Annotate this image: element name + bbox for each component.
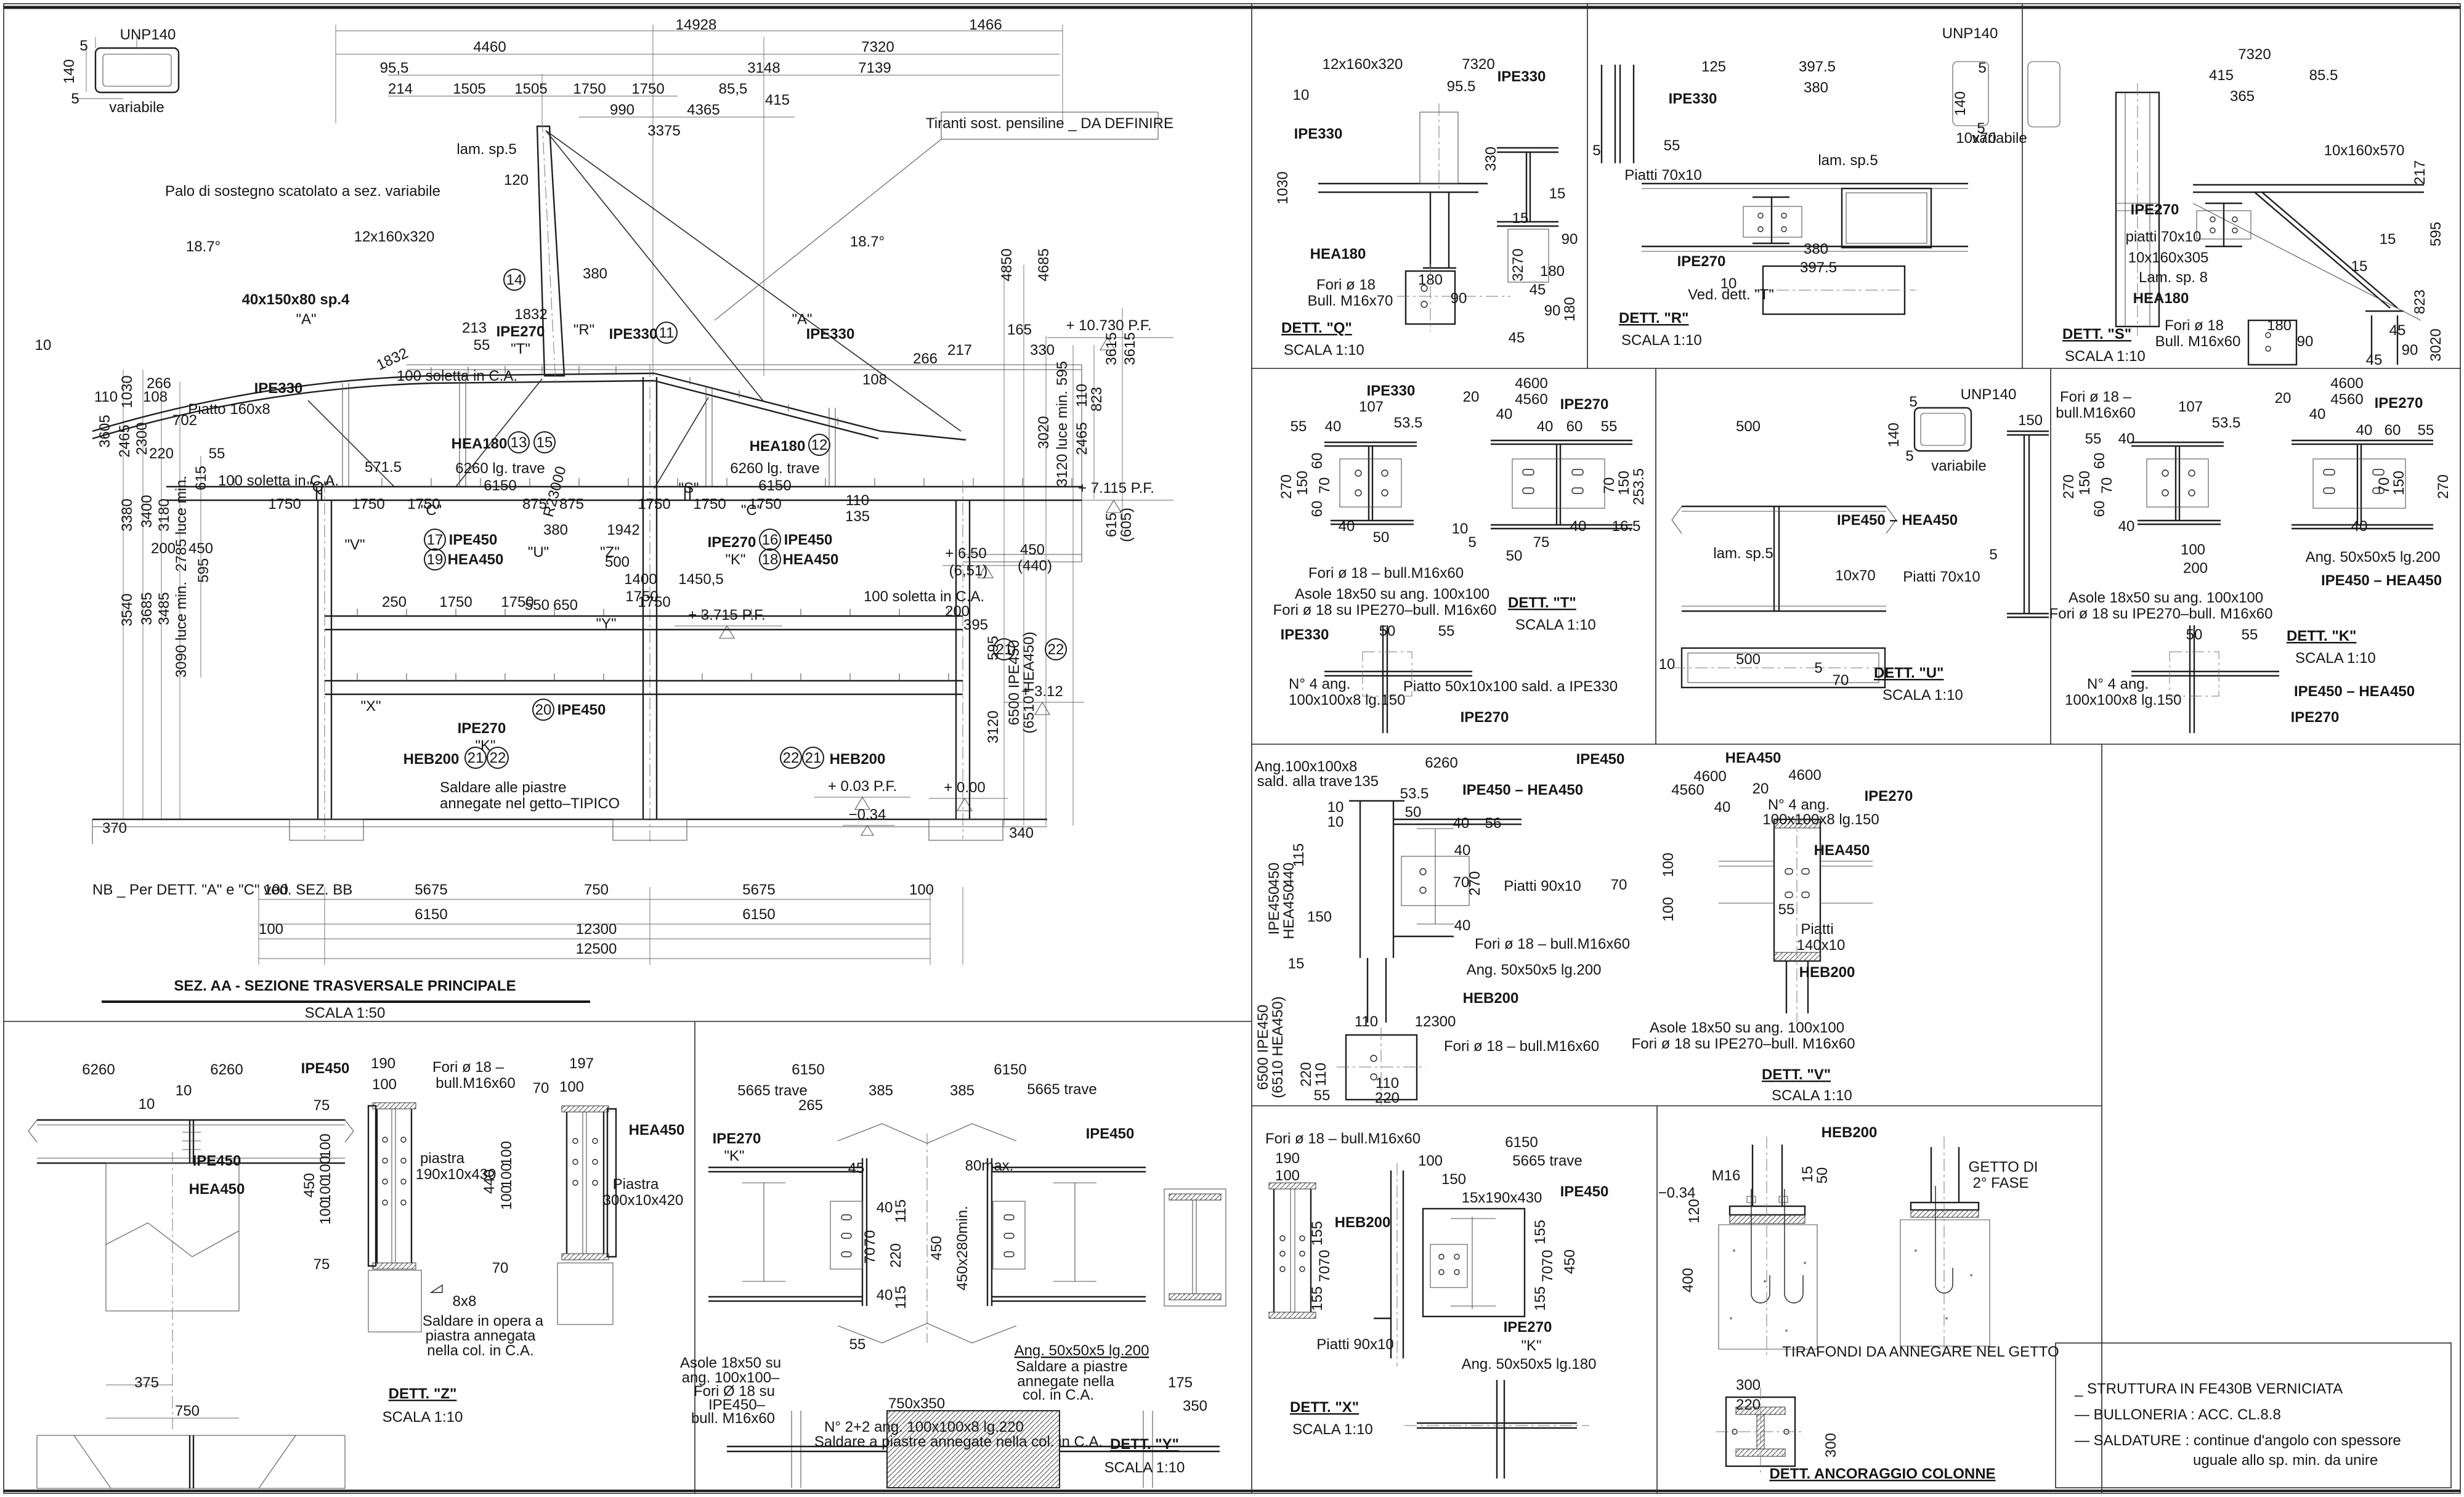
dim-label: 615 bbox=[193, 466, 209, 490]
dim-label: IPE270 bbox=[496, 323, 545, 340]
dim-label: 4460 bbox=[473, 39, 506, 55]
dim-label: 266 bbox=[913, 351, 938, 367]
dim-label: 875 bbox=[559, 496, 584, 513]
dim-label: 190 bbox=[371, 1055, 395, 1072]
dim-label: 15 bbox=[1799, 1166, 1816, 1183]
dim-label: Saldare a piastre bbox=[1016, 1358, 1127, 1375]
dim-label: Ang. 50x50x5 lg.180 bbox=[1462, 1356, 1597, 1373]
dim-label: 500 bbox=[1736, 418, 1761, 435]
dim-label: Fori ø 18 – bull.M16x60 bbox=[1308, 565, 1464, 582]
dim-label: SCALA 1:10 bbox=[2295, 650, 2376, 667]
nb-note: NB _ Per DETT. "A" e "C" ved. SEZ. BB bbox=[92, 882, 352, 898]
dim-label: 3180 bbox=[156, 498, 172, 531]
dim-label: 50 bbox=[1379, 623, 1396, 639]
dim-label: 107 bbox=[2178, 399, 2203, 415]
dim-label: 5 bbox=[79, 38, 87, 54]
sheet-scale: SCALA 1:50 bbox=[305, 1005, 386, 1021]
dim-label: DETT. "U" bbox=[1874, 665, 1943, 681]
dim-label: 750 bbox=[175, 1403, 200, 1419]
dim-label: 380 bbox=[1804, 241, 1828, 258]
dim-label: "A" bbox=[792, 311, 812, 328]
dim-label: 150 bbox=[1294, 471, 1311, 495]
panel-ancoraggio bbox=[1716, 1137, 1990, 1476]
dim-label: 253.5 bbox=[1631, 468, 1647, 505]
dim-label: 90 bbox=[2297, 333, 2314, 350]
dim-label: 2° FASE bbox=[1973, 1175, 2029, 1191]
callout-number: 12 bbox=[809, 434, 830, 455]
dim-label: 70 bbox=[1611, 877, 1627, 893]
dim-label: Piatto 160x8 bbox=[188, 401, 270, 418]
dim-label: 380 bbox=[543, 522, 568, 538]
dim-label: 100 bbox=[1418, 1153, 1443, 1169]
dim-label: 5675 bbox=[742, 882, 775, 898]
dim-label: 3020 bbox=[2428, 328, 2444, 361]
annotation-layer: 1492814664460732095,53148713921415051505… bbox=[35, 17, 2452, 1482]
dim-label: M16 bbox=[1712, 1167, 1741, 1184]
dim-label: 1750 bbox=[638, 594, 670, 611]
dim-label: 165 bbox=[1007, 322, 1032, 338]
dim-label: 5 bbox=[71, 91, 79, 107]
dim-label: 22 bbox=[490, 750, 506, 766]
dim-label: HEB200 bbox=[1822, 1124, 1878, 1141]
dim-label: 15 bbox=[1288, 955, 1305, 972]
dim-label: 15x190x430 bbox=[1462, 1190, 1542, 1206]
dim-label: 595 bbox=[2428, 222, 2444, 246]
dim-label: 75 bbox=[314, 1256, 330, 1273]
dim-label: 990 bbox=[610, 102, 634, 118]
dim-label: "V" bbox=[344, 537, 365, 553]
dim-label: "K" bbox=[1521, 1337, 1541, 1354]
dim-label: 220 bbox=[1736, 1397, 1761, 1413]
main-section-drawing bbox=[74, 25, 1173, 965]
dim-label: "Y" bbox=[596, 615, 616, 632]
dim-label: 1505 bbox=[514, 81, 547, 97]
dim-label: 20 bbox=[1463, 389, 1480, 405]
dim-label: 5 bbox=[1978, 60, 1986, 76]
dim-label: SCALA 1:10 bbox=[2065, 348, 2146, 365]
dim-label: 6500 IPE450 bbox=[1255, 1005, 1271, 1090]
dim-label: IPE330 bbox=[1294, 126, 1343, 142]
dim-label: 107 bbox=[1359, 399, 1384, 415]
dim-label: Ang.100x100x8 bbox=[1255, 758, 1358, 775]
dim-label: IPE270 bbox=[708, 534, 756, 551]
dim-label: 12300 bbox=[576, 921, 617, 938]
dim-label: IPE270 bbox=[2375, 395, 2423, 412]
dim-label: 140x10 bbox=[1797, 937, 1846, 954]
dim-label: 150 bbox=[1307, 909, 1332, 925]
dim-label: Saldare alle piastre bbox=[440, 779, 566, 796]
dim-label: 330 bbox=[1030, 342, 1055, 359]
dim-label: Piatti 90x10 bbox=[1316, 1336, 1393, 1353]
dim-label: 53.5 bbox=[2212, 415, 2241, 431]
dim-label: 45 bbox=[2366, 352, 2383, 368]
dim-label: Fori ø 18 bbox=[2165, 317, 2224, 334]
dim-label: IPE270 bbox=[713, 1130, 761, 1147]
dim-label: 400 bbox=[1680, 1268, 1696, 1292]
dim-label: 450 bbox=[1020, 542, 1045, 558]
dim-label: 4560 bbox=[2330, 391, 2363, 408]
dim-label: HEB200 bbox=[1799, 964, 1855, 981]
note-line: — BULLONERIA : ACC. CL.8.8 bbox=[2075, 1406, 2281, 1423]
dim-label: 10x160x570 bbox=[2324, 142, 2405, 159]
dim-label: HEA450 bbox=[1281, 884, 1297, 939]
dim-label: IPE450 bbox=[557, 702, 606, 718]
dim-label: Asole 18x50 su ang. 100x100 bbox=[1295, 586, 1489, 602]
callout-number: 22 bbox=[1045, 639, 1066, 660]
dim-label: HEA450 bbox=[1814, 842, 1870, 859]
dim-label: IPE450 bbox=[1266, 886, 1283, 935]
dim-label: 1400 bbox=[624, 571, 657, 588]
dim-label: 6150 bbox=[758, 477, 791, 494]
dim-label: 823 bbox=[1088, 387, 1105, 412]
dim-label: 110 bbox=[1074, 384, 1090, 407]
dim-label: 100x100x8 lg.150 bbox=[1289, 692, 1406, 708]
dim-label: HEA180 bbox=[1310, 246, 1366, 262]
dim-label: HEB200 bbox=[830, 751, 886, 768]
dim-label: Tiranti sost. pensiline _ DA DEFINIRE bbox=[926, 115, 1173, 132]
dim-label: 5 bbox=[1905, 448, 1913, 465]
dim-label: piatti 70x10 bbox=[2126, 229, 2202, 245]
dim-label: Fori ø 18 – bbox=[432, 1059, 505, 1076]
dim-label: IPE270 bbox=[1865, 788, 1913, 805]
dim-label: 3375 bbox=[647, 123, 680, 139]
dim-label: 12300 bbox=[1415, 1013, 1456, 1030]
dim-label: Ang. 50x50x5 lg.200 bbox=[2306, 549, 2441, 566]
dim-label: 140 bbox=[61, 59, 78, 84]
dim-label: 220 bbox=[1298, 1062, 1315, 1087]
dim-label: 220 bbox=[1375, 1090, 1400, 1106]
dim-label: 40 bbox=[2309, 406, 2326, 423]
dim-label: Bull. M16x60 bbox=[2155, 333, 2241, 350]
callout-number: 11 bbox=[656, 322, 677, 343]
dim-label: 4365 bbox=[687, 102, 719, 118]
dim-label: 70 bbox=[2376, 477, 2393, 494]
dim-label: 70 bbox=[533, 1080, 549, 1097]
sheet-frame bbox=[4, 4, 2460, 1493]
dim-label: 450 bbox=[301, 1173, 318, 1198]
dim-label: 40 bbox=[1496, 406, 1513, 423]
dim-label: 15 bbox=[1549, 185, 1566, 202]
dim-label: 55 bbox=[1291, 418, 1307, 435]
dim-label: 11 bbox=[659, 325, 675, 341]
dim-label: 12 bbox=[811, 437, 828, 453]
callout-number: 22 bbox=[780, 747, 801, 768]
dim-label: DETT. ANCORAGGIO COLONNE bbox=[1769, 1466, 1995, 1482]
dim-label: 40 bbox=[1339, 518, 1355, 535]
dim-label: 12x160x320 bbox=[354, 229, 435, 245]
dim-label: IPE270 bbox=[2291, 709, 2340, 726]
dim-label: 5665 trave bbox=[1512, 1153, 1582, 1169]
dim-label: 10 bbox=[176, 1082, 192, 1099]
dim-label: SCALA 1:10 bbox=[1621, 332, 1702, 349]
dim-label: 140 bbox=[1952, 91, 1969, 116]
dim-label: 100 bbox=[498, 1185, 515, 1210]
dim-label: 53.5 bbox=[1394, 415, 1423, 431]
dim-label: "C" bbox=[421, 502, 442, 519]
dim-label: 3380 bbox=[119, 498, 136, 531]
dim-label: variabile bbox=[109, 99, 164, 116]
dim-label: "K" bbox=[724, 1148, 744, 1164]
dim-label: 4600 bbox=[1788, 767, 1821, 784]
dim-label: 40 bbox=[1454, 917, 1471, 934]
dim-label: 5 bbox=[1909, 394, 1917, 410]
dim-label: 40 bbox=[1537, 418, 1554, 435]
dim-label: 270 bbox=[2435, 474, 2452, 499]
panel-dett-r bbox=[1602, 62, 1988, 314]
dim-label: 1750 bbox=[631, 81, 664, 97]
dim-label: Saldare in opera a bbox=[423, 1313, 544, 1329]
dim-label: 50 bbox=[1814, 1167, 1831, 1184]
dim-label: 100 bbox=[498, 1141, 515, 1166]
dim-label: + 3.12 bbox=[1021, 683, 1063, 700]
dim-label: 150 bbox=[1616, 471, 1632, 495]
dim-label: 70 bbox=[1539, 1266, 1556, 1283]
note-line: uguale allo sp. min. da unire bbox=[2193, 1452, 2378, 1469]
dim-label: 10 bbox=[1452, 521, 1469, 537]
dim-label: 300 bbox=[1823, 1433, 1839, 1458]
dim-label: HEA180 bbox=[750, 438, 806, 455]
dim-label: IPE450 – HEA450 bbox=[1837, 512, 1958, 529]
dim-label: 110 bbox=[846, 492, 869, 509]
dim-label: 100 bbox=[317, 1200, 334, 1225]
dim-label: 750 bbox=[584, 882, 609, 898]
dim-label: 10 bbox=[1327, 814, 1344, 830]
dim-label: 650 bbox=[553, 597, 578, 614]
dim-label: 1750 bbox=[439, 594, 472, 611]
dim-label: 40x150x80 sp.4 bbox=[242, 291, 350, 308]
dim-label: Piatti bbox=[1801, 921, 1833, 938]
dim-label: IPE330 bbox=[1669, 91, 1717, 107]
dim-label: 155 bbox=[1532, 1286, 1549, 1311]
dim-label: 5665 trave bbox=[737, 1082, 807, 1099]
dim-label: 220 bbox=[149, 445, 174, 462]
dim-label: + 7.115 P.F. bbox=[1078, 480, 1154, 497]
dim-label: 450 bbox=[188, 540, 213, 557]
dim-label: 100 bbox=[1275, 1167, 1300, 1184]
dim-label: 120 bbox=[504, 172, 529, 189]
dim-label: SCALA 1:10 bbox=[1104, 1459, 1185, 1476]
dim-label: 70 bbox=[1316, 1250, 1333, 1267]
dim-label: 70 bbox=[1316, 1266, 1333, 1283]
dim-label: 16 bbox=[762, 532, 779, 548]
dim-label: Piastra bbox=[613, 1176, 659, 1193]
dim-label: 875 bbox=[522, 496, 547, 513]
dim-label: SCALA 1:10 bbox=[1515, 617, 1596, 633]
dim-label: 70 bbox=[862, 1230, 878, 1247]
dim-label: 180 bbox=[1562, 297, 1578, 322]
dim-label: 40 bbox=[877, 1199, 893, 1216]
dim-label: 5 bbox=[1592, 142, 1600, 159]
dim-label: HEB200 bbox=[1463, 990, 1519, 1007]
dim-label: 50 bbox=[1373, 529, 1390, 546]
dim-label: 450 bbox=[928, 1236, 945, 1260]
dim-label: 60 bbox=[1566, 418, 1583, 435]
dim-label: 6150 bbox=[484, 477, 516, 494]
dim-label: 85,5 bbox=[719, 81, 748, 97]
dim-label: 40 bbox=[2118, 431, 2135, 447]
dim-label: N° 4 ang. bbox=[1768, 797, 1830, 813]
dim-label: + 0.03 P.F. bbox=[828, 778, 897, 795]
dim-label: 270 bbox=[2061, 474, 2077, 499]
dim-label: 7320 bbox=[1462, 56, 1494, 73]
dim-label: 595 bbox=[1054, 361, 1071, 386]
dim-label: HEA450 bbox=[783, 551, 839, 568]
dim-label: Fori ø 18 su IPE270–bull. M16x60 bbox=[2049, 606, 2273, 622]
dim-label: 95,5 bbox=[380, 60, 409, 76]
dim-label: "Z" bbox=[600, 544, 620, 561]
dim-label: bull. M16x60 bbox=[691, 1410, 775, 1427]
dim-label: 180 bbox=[1418, 272, 1443, 288]
dim-label: 70 bbox=[492, 1260, 509, 1276]
dim-label: 6260 lg. trave bbox=[730, 460, 819, 477]
dim-label: (6,51) bbox=[949, 562, 988, 579]
dim-label: 6150 bbox=[994, 1061, 1026, 1078]
dim-label: (6510 HEA450) bbox=[1270, 996, 1286, 1098]
dim-label: 100 bbox=[559, 1079, 584, 1095]
dim-label: 300x10x420 bbox=[603, 1192, 684, 1209]
dim-label: 55 bbox=[1601, 418, 1618, 435]
dim-label: IPE450 bbox=[301, 1060, 350, 1077]
dim-label: IPE450 – HEA450 bbox=[2321, 572, 2442, 589]
dim-label: 100 bbox=[1660, 897, 1677, 922]
dim-label: 190 bbox=[1275, 1150, 1300, 1167]
dim-label: 10 bbox=[139, 1096, 155, 1113]
note-line: — SALDATURE : continue d'angolo con spes… bbox=[2075, 1432, 2401, 1449]
dim-label: 110 bbox=[94, 389, 118, 405]
dim-label: IPE450 – HEA450 bbox=[1462, 782, 1583, 798]
dim-label: 270 bbox=[1467, 871, 1483, 896]
dim-label: Ang. 50x50x5 lg.200 bbox=[1015, 1342, 1149, 1359]
dim-label: DETT. "Q" bbox=[1281, 320, 1352, 336]
dim-label: −0.34 bbox=[849, 806, 886, 823]
dim-label: Ang. 50x50x5 lg.200 bbox=[1467, 962, 1602, 978]
dim-label: 4560 bbox=[1515, 391, 1547, 408]
dim-label: SCALA 1:10 bbox=[1292, 1421, 1373, 1438]
dim-label: 40 bbox=[1570, 518, 1587, 535]
dim-label: "R" bbox=[573, 322, 594, 338]
dim-label: HEA450 bbox=[1725, 750, 1781, 766]
dim-label: 108 bbox=[143, 389, 168, 405]
dim-label: 3090 luce min. bbox=[173, 582, 190, 678]
dim-label: 415 bbox=[2209, 67, 2234, 84]
dim-label: 100 bbox=[1660, 853, 1677, 877]
dim-label: 21 bbox=[468, 750, 484, 766]
dim-label: 1942 bbox=[607, 522, 639, 538]
dim-label: 6150 bbox=[415, 906, 447, 923]
dim-label: 5 bbox=[1989, 546, 1997, 563]
dim-label: 95.5 bbox=[1447, 78, 1476, 95]
dim-label: 100 soletta in C.A. bbox=[218, 473, 339, 489]
dim-label: GETTO DI bbox=[1969, 1159, 2038, 1175]
dim-label: HEA180 bbox=[452, 436, 508, 452]
dim-label: 4600 bbox=[1515, 375, 1547, 392]
dim-label: 40 bbox=[1453, 815, 1470, 832]
dim-label: 217 bbox=[2412, 160, 2428, 185]
dim-label: 385 bbox=[869, 1082, 893, 1099]
dim-label: 140 bbox=[1886, 423, 1902, 447]
dim-label: 55 bbox=[1314, 1087, 1331, 1104]
dim-label: Fori ø 18 su IPE270–bull. M16x60 bbox=[1273, 602, 1497, 619]
dim-label: SCALA 1:10 bbox=[1882, 687, 1963, 704]
dim-label: Lam. sp. 8 bbox=[2139, 269, 2208, 286]
dim-label: SCALA 1:10 bbox=[383, 1409, 463, 1426]
dim-label: 40 bbox=[877, 1287, 893, 1304]
dim-label: 220 bbox=[888, 1243, 904, 1268]
dim-label: 7320 bbox=[861, 39, 894, 55]
dim-label: 15 bbox=[537, 434, 553, 451]
dim-label: IPE270 bbox=[2131, 201, 2179, 218]
dim-label: IPE450 bbox=[1576, 751, 1625, 768]
drawing-canvas: SEZ. AA - SEZIONE TRASVERSALE PRINCIPALE… bbox=[0, 0, 2464, 1497]
dim-label: 415 bbox=[765, 92, 790, 108]
dim-label: 1466 bbox=[969, 17, 1002, 33]
dim-label: 21 bbox=[805, 750, 822, 766]
dim-label: 571.5 bbox=[365, 459, 402, 476]
dim-label: 6260 bbox=[1425, 755, 1457, 771]
dim-label: 40 bbox=[1454, 842, 1471, 859]
dim-label: lam. sp.5 bbox=[1818, 152, 1878, 169]
dim-label: 175 bbox=[1168, 1374, 1193, 1391]
dim-label: piastra bbox=[420, 1150, 465, 1167]
dim-label: "T" bbox=[511, 341, 530, 357]
dim-label: 100 bbox=[317, 1178, 334, 1203]
dim-label: 1750 bbox=[693, 496, 726, 513]
dim-label: UNP140 bbox=[1961, 386, 2017, 403]
dim-label: 55 bbox=[849, 1336, 866, 1353]
dim-label: IPE450 bbox=[1086, 1126, 1135, 1142]
dim-label: DETT. "Y" bbox=[1110, 1436, 1179, 1453]
dim-label: Bull. M16x70 bbox=[1308, 293, 1393, 309]
dim-label: 180 bbox=[2267, 317, 2292, 334]
dim-label: N° 2+2 ang. 100x100x8 lg.220 bbox=[824, 1419, 1024, 1435]
dim-label: 16.5 bbox=[1612, 518, 1641, 535]
dim-label: 55 bbox=[2242, 627, 2258, 643]
dim-label: 135 bbox=[1354, 773, 1379, 790]
dim-label: 70 bbox=[1539, 1250, 1556, 1267]
dim-label: 4685 bbox=[1035, 248, 1052, 281]
dim-label: SCALA 1:10 bbox=[1284, 342, 1364, 359]
dim-label: 100 bbox=[2181, 542, 2205, 558]
dim-label: 120 bbox=[1686, 1199, 1703, 1223]
dim-label: 40 bbox=[2118, 518, 2135, 535]
dim-label: HEB200 bbox=[1335, 1214, 1391, 1231]
dim-label: 10x70 bbox=[1835, 567, 1875, 584]
dim-label: Palo di sostegno scatolato a sez. variab… bbox=[165, 183, 440, 200]
sheet-title: SEZ. AA - SEZIONE TRASVERSALE PRINCIPALE bbox=[174, 978, 516, 994]
dim-label: + 6.50 bbox=[945, 545, 986, 562]
dim-label: 330 bbox=[1483, 147, 1499, 171]
dim-label: 6500 IPE450 bbox=[1006, 640, 1023, 726]
dim-label: 6150 bbox=[792, 1061, 824, 1078]
dim-label: 2300 bbox=[134, 422, 150, 455]
dim-label: 3120 luce min. bbox=[1054, 391, 1071, 487]
dim-label: IPE450 bbox=[449, 532, 498, 548]
dim-label: 20 bbox=[535, 702, 552, 718]
dim-label: 100 bbox=[909, 882, 934, 898]
dim-label: 18.7° bbox=[186, 238, 221, 255]
dim-label: 56 bbox=[1485, 815, 1502, 832]
dim-label: annegate nel getto–TIPICO bbox=[440, 795, 620, 812]
dim-label: 75 bbox=[314, 1097, 330, 1114]
dim-label: 3605 bbox=[97, 415, 113, 447]
dim-label: 450 bbox=[1562, 1249, 1578, 1274]
dim-label: 90 bbox=[1451, 290, 1467, 307]
dim-label: 60 bbox=[1309, 453, 1326, 469]
dim-label: (6510 HEA450) bbox=[1021, 631, 1037, 733]
dim-label: HEA180 bbox=[2133, 290, 2189, 307]
dim-label: 370 bbox=[102, 820, 127, 837]
dim-label: 595 bbox=[195, 558, 212, 583]
